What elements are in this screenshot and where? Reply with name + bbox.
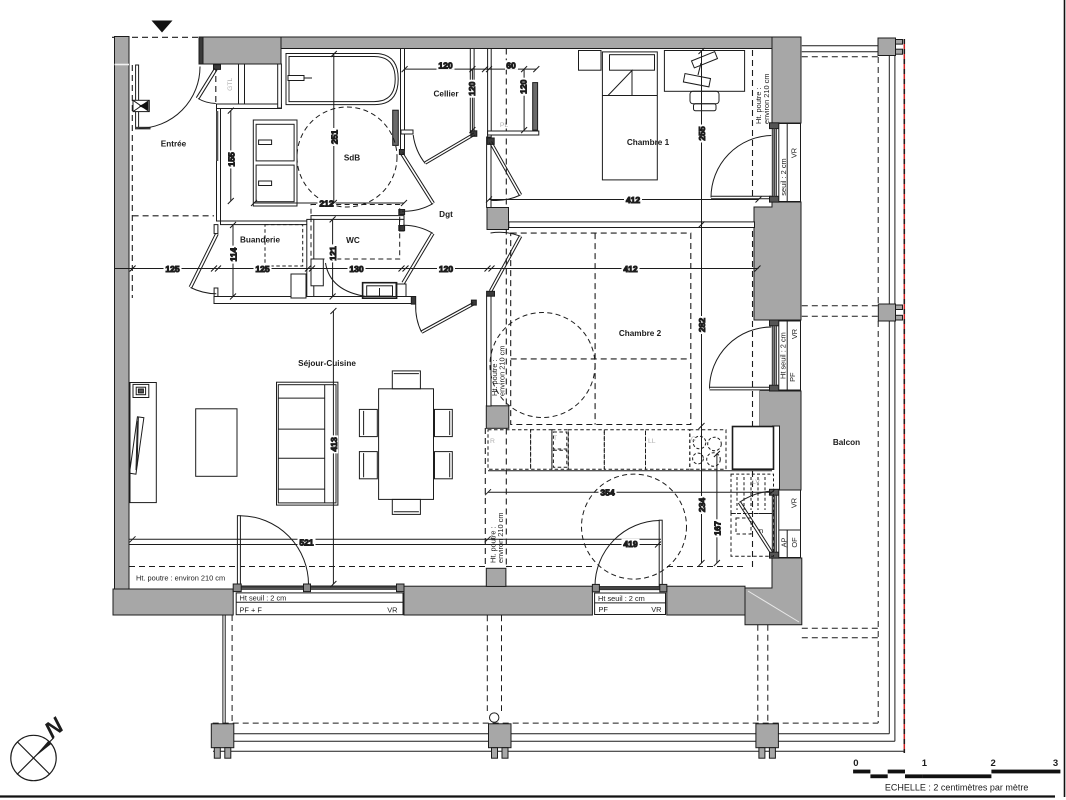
svg-text:AP: AP: [779, 538, 788, 548]
svg-text:1: 1: [922, 758, 928, 769]
svg-text:120: 120: [467, 81, 477, 96]
svg-text:167: 167: [712, 521, 722, 536]
svg-text:120: 120: [439, 264, 454, 274]
svg-text:Ht seuil : 2 cm: Ht seuil : 2 cm: [598, 594, 645, 603]
svg-text:125: 125: [255, 264, 270, 274]
svg-text:212: 212: [319, 199, 334, 209]
svg-text:419: 419: [623, 539, 638, 549]
svg-text:3: 3: [1053, 758, 1058, 769]
svg-text:OF: OF: [790, 537, 799, 548]
svg-text:234: 234: [697, 498, 707, 513]
svg-text:VR: VR: [790, 329, 799, 339]
svg-text:PF: PF: [788, 372, 797, 382]
svg-text:282: 282: [697, 318, 707, 333]
svg-text:T: T: [553, 435, 557, 442]
svg-text:130: 130: [349, 264, 364, 274]
svg-text:R: R: [490, 438, 495, 445]
svg-text:VR: VR: [387, 606, 397, 615]
svg-text:114: 114: [229, 247, 239, 261]
svg-text:Ht. poutre : environ 210 cm: Ht. poutre : environ 210 cm: [136, 574, 225, 583]
svg-text:Buanderie: Buanderie: [240, 236, 280, 245]
svg-text:seuil : 2 cm: seuil : 2 cm: [779, 158, 788, 195]
svg-text:Chambre 1: Chambre 1: [627, 138, 670, 147]
svg-text:354: 354: [600, 488, 615, 498]
svg-text:412: 412: [623, 264, 638, 274]
svg-text:C: C: [691, 436, 696, 443]
svg-text:PL: PL: [500, 122, 509, 129]
svg-text:Séjour-Cuisine: Séjour-Cuisine: [298, 359, 356, 368]
svg-text:LL: LL: [648, 438, 656, 445]
svg-text:125: 125: [165, 264, 180, 274]
svg-text:Dgt: Dgt: [439, 210, 453, 219]
svg-text:LV: LV: [752, 479, 760, 486]
svg-text:SdB: SdB: [344, 154, 360, 163]
svg-text:521: 521: [299, 538, 314, 548]
svg-text:GTL: GTL: [227, 77, 234, 90]
svg-text:Cellier: Cellier: [433, 90, 459, 99]
svg-text:ECHELLE : 2 centimètres par mè: ECHELLE : 2 centimètres par mètre: [885, 783, 1029, 793]
svg-text:environ 210 cm: environ 210 cm: [496, 512, 505, 563]
svg-text:120: 120: [519, 79, 529, 94]
svg-text:WC: WC: [346, 236, 360, 245]
svg-text:155: 155: [226, 152, 236, 167]
svg-text:121: 121: [328, 246, 338, 261]
svg-text:251: 251: [329, 130, 339, 145]
svg-text:255: 255: [697, 126, 707, 141]
svg-text:Entrée: Entrée: [161, 140, 187, 149]
svg-text:60: 60: [506, 61, 516, 71]
svg-text:Ht seuil : 2 cm: Ht seuil : 2 cm: [240, 594, 287, 603]
svg-text:PF: PF: [599, 605, 609, 614]
svg-text:VR: VR: [790, 498, 799, 508]
svg-text:environ 210 cm: environ 210 cm: [498, 345, 507, 396]
svg-text:412: 412: [626, 195, 641, 205]
svg-text:environ 210 cm: environ 210 cm: [762, 73, 771, 124]
svg-text:PF + F: PF + F: [240, 606, 263, 615]
svg-text:Ht seuil : 2 cm: Ht seuil : 2 cm: [778, 332, 787, 379]
svg-text:2: 2: [990, 758, 995, 769]
svg-text:Balcon: Balcon: [833, 438, 860, 447]
svg-text:Chambre 2: Chambre 2: [619, 329, 662, 338]
svg-text:413: 413: [329, 437, 339, 452]
svg-text:n: n: [759, 526, 763, 535]
svg-text:120: 120: [438, 61, 453, 71]
svg-text:0: 0: [853, 758, 858, 769]
svg-text:VR: VR: [651, 605, 661, 614]
svg-text:VR: VR: [790, 148, 799, 158]
